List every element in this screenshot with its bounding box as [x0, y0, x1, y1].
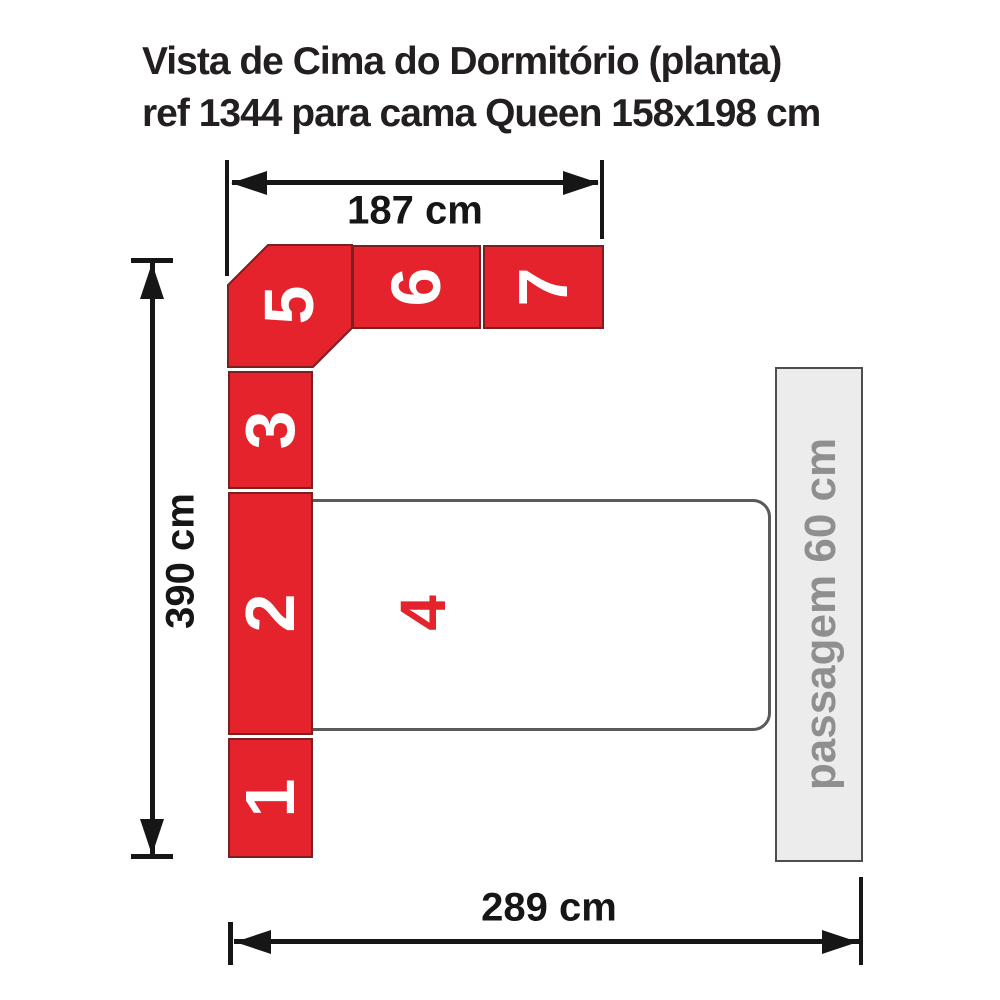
bed-outline [308, 499, 771, 731]
arrowhead-up-icon [140, 263, 164, 299]
arrowhead-right-icon [822, 930, 858, 954]
bed-label: 4 [386, 595, 460, 631]
module-2-label: 2 [230, 594, 310, 633]
module-1-label: 1 [230, 779, 310, 818]
title-line-2: ref 1344 para cama Queen 158x198 cm [142, 88, 820, 140]
title-line-1: Vista de Cima do Dormitório (planta) [142, 36, 820, 88]
dim-bottom-extension-right [859, 877, 863, 965]
dim-top-line [232, 180, 598, 185]
dim-top-extension-right [600, 160, 604, 239]
dim-bottom-cap-left [228, 922, 233, 965]
module-7-label: 7 [503, 268, 583, 307]
arrowhead-left-icon [235, 930, 271, 954]
module-6-label: 6 [376, 268, 456, 307]
passage-label: passagem 60 cm [796, 438, 846, 790]
dim-bottom-label: 289 cm [481, 886, 617, 931]
arrowhead-left-icon [231, 171, 267, 195]
module-5-label: 5 [249, 286, 329, 325]
dim-bottom-line [234, 939, 859, 944]
arrowhead-down-icon [140, 819, 164, 855]
floorplan-diagram: Vista de Cima do Dormitório (planta) ref… [0, 0, 1000, 1000]
dim-top-label: 187 cm [347, 189, 483, 234]
module-3-label: 3 [230, 411, 310, 450]
arrowhead-right-icon [563, 171, 599, 195]
dim-left-label: 390 cm [159, 493, 204, 629]
dim-left-line [150, 263, 155, 855]
page-title: Vista de Cima do Dormitório (planta) ref… [142, 36, 820, 140]
